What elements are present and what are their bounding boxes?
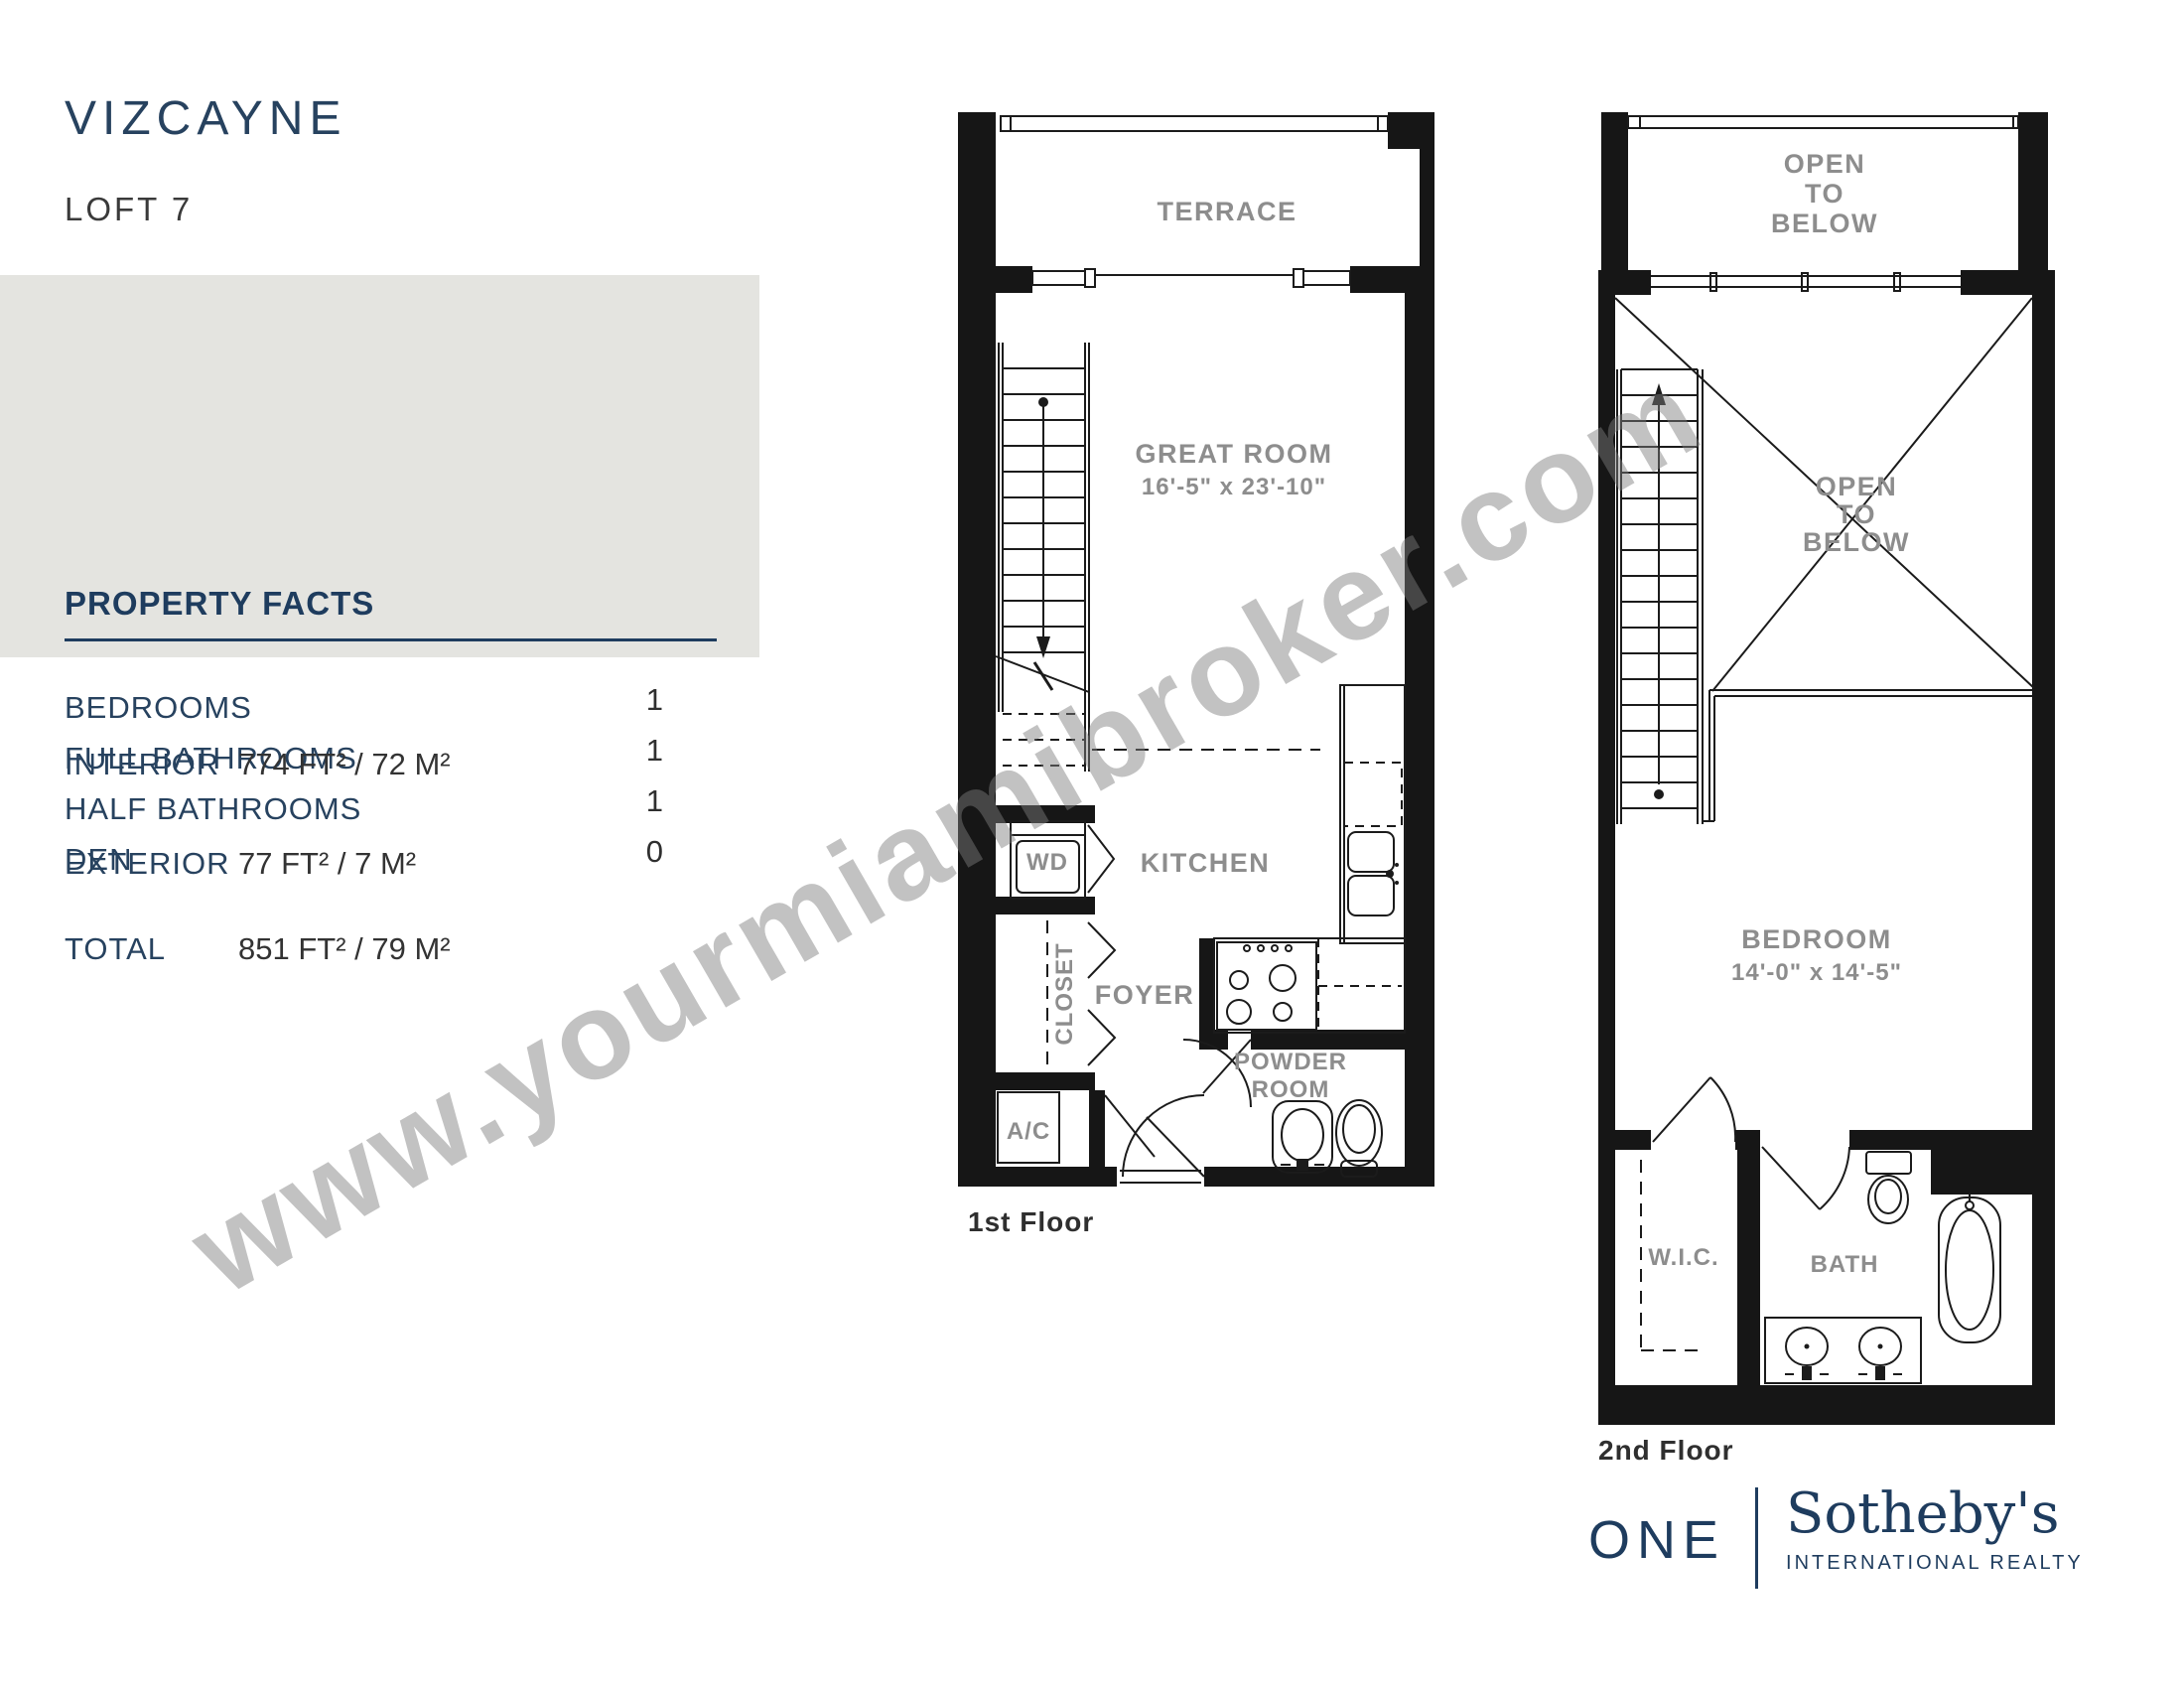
great-room-label: GREAT ROOM — [1136, 439, 1333, 469]
open-to-below-top-line2: TO — [1805, 179, 1844, 209]
wic-door — [1653, 1077, 1735, 1142]
bedroom-dims: 14'-0" x 14'-5" — [1731, 959, 1902, 986]
entry-door — [1120, 1095, 1204, 1183]
fact-label: BEDROOMS — [65, 690, 252, 726]
area-label: TOTAL — [65, 931, 166, 967]
logo-brand: Sotheby's — [1786, 1481, 2084, 1546]
logo-divider — [1755, 1487, 1758, 1589]
first-floor-plan: TERRACE GREAT ROOM 16'-5" x 23'-10" KITC… — [953, 104, 1449, 1241]
stairs-down — [996, 343, 1089, 772]
area-row-exterior: EXTERIOR 77 FT² / 7 M² — [0, 846, 759, 888]
logo-tagline: INTERNATIONAL REALTY — [1786, 1552, 2084, 1575]
ac-label: A/C — [1007, 1118, 1050, 1145]
area-label: EXTERIOR — [65, 846, 229, 882]
wic-label: W.I.C. — [1648, 1244, 1718, 1271]
bath-label: BATH — [1811, 1251, 1879, 1278]
terrace-label: TERRACE — [1157, 197, 1297, 226]
area-value: 77 FT² / 7 M² — [238, 846, 416, 882]
first-floor-caption: 1st Floor — [968, 1206, 1094, 1237]
area-row-total: TOTAL 851 FT² / 79 M² — [0, 931, 759, 973]
bedroom-label: BEDROOM — [1741, 924, 1892, 954]
logo-one: ONE — [1588, 1509, 1725, 1571]
property-facts-heading: PROPERTY FACTS — [65, 585, 374, 623]
fact-row-half-bathrooms: HALF BATHROOMS 1 — [0, 791, 759, 831]
fact-value: 1 — [596, 682, 663, 718]
second-floor-plan: OPEN TO BELOW OPEN TO BELOW BEDROOM 14'-… — [1596, 107, 2063, 1468]
first-floor-walls — [958, 112, 1434, 1187]
page-title: VIZCAYNE — [65, 91, 346, 146]
bedroom-walls — [1703, 690, 2032, 821]
great-room-dims: 16'-5" x 23'-10" — [1142, 474, 1326, 500]
foyer-label: FOYER — [1095, 980, 1195, 1010]
powder-room-label-line1: POWDER — [1234, 1049, 1347, 1075]
open-to-below-mid-line1: OPEN — [1816, 472, 1898, 501]
wd-label: WD — [1026, 849, 1068, 876]
second-floor-caption: 2nd Floor — [1598, 1435, 1734, 1466]
open-to-below-mid-line2: TO — [1837, 499, 1876, 529]
open-to-below-top-line1: OPEN — [1784, 149, 1866, 179]
area-value: 851 FT² / 79 M² — [238, 931, 451, 967]
heading-underline — [65, 638, 717, 641]
open-to-below-mid-line3: BELOW — [1803, 527, 1910, 557]
area-row-interior: INTERIOR 774 FT² / 72 M² — [0, 747, 759, 788]
brokerage-logo: ONE Sotheby's INTERNATIONAL REALTY — [1588, 1481, 2084, 1589]
fact-label: HALF BATHROOMS — [65, 791, 361, 827]
kitchen-label: KITCHEN — [1141, 848, 1271, 878]
fact-value: 1 — [596, 783, 663, 819]
bath-door — [1762, 1147, 1849, 1209]
powder-room-label-line2: ROOM — [1252, 1076, 1330, 1103]
area-value: 774 FT² / 72 M² — [238, 747, 451, 782]
area-label: INTERIOR — [65, 747, 219, 782]
open-to-below-top-line3: BELOW — [1771, 209, 1878, 238]
property-facts-box: PROPERTY FACTS BEDROOMS 1 FULL BATHROOMS… — [0, 275, 759, 657]
unit-subtitle: LOFT 7 — [65, 191, 193, 228]
fact-row-bedrooms: BEDROOMS 1 — [0, 690, 759, 730]
stairs-up — [1617, 369, 1703, 824]
closet-label: CLOSET — [1051, 942, 1078, 1045]
logo-right: Sotheby's INTERNATIONAL REALTY — [1786, 1481, 2084, 1575]
